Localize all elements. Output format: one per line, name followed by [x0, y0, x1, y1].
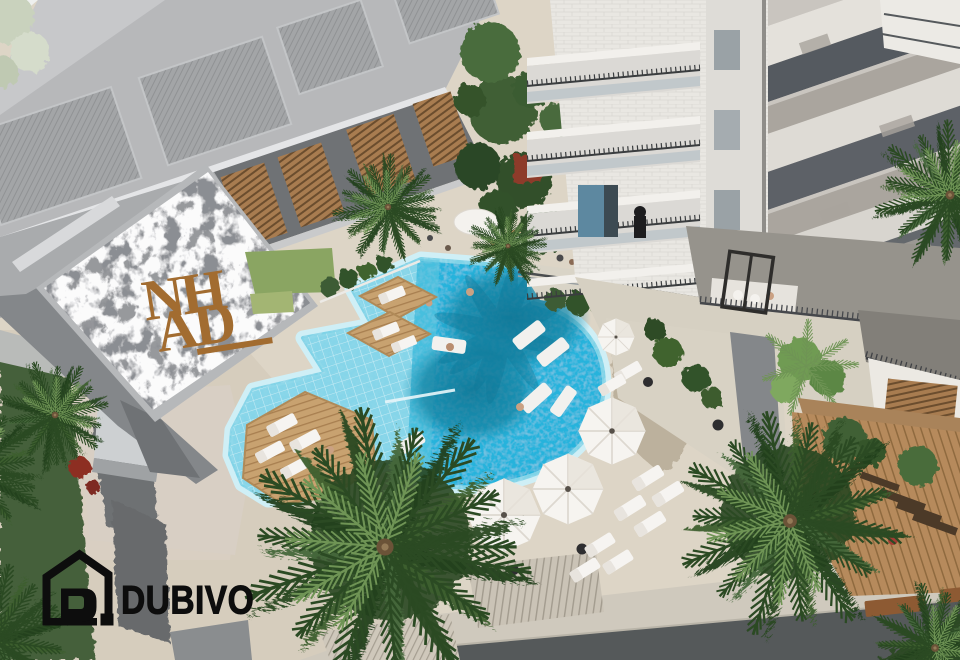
svg-text:DUBIVO: DUBIVO	[121, 578, 254, 622]
svg-text:AD: AD	[151, 288, 239, 365]
